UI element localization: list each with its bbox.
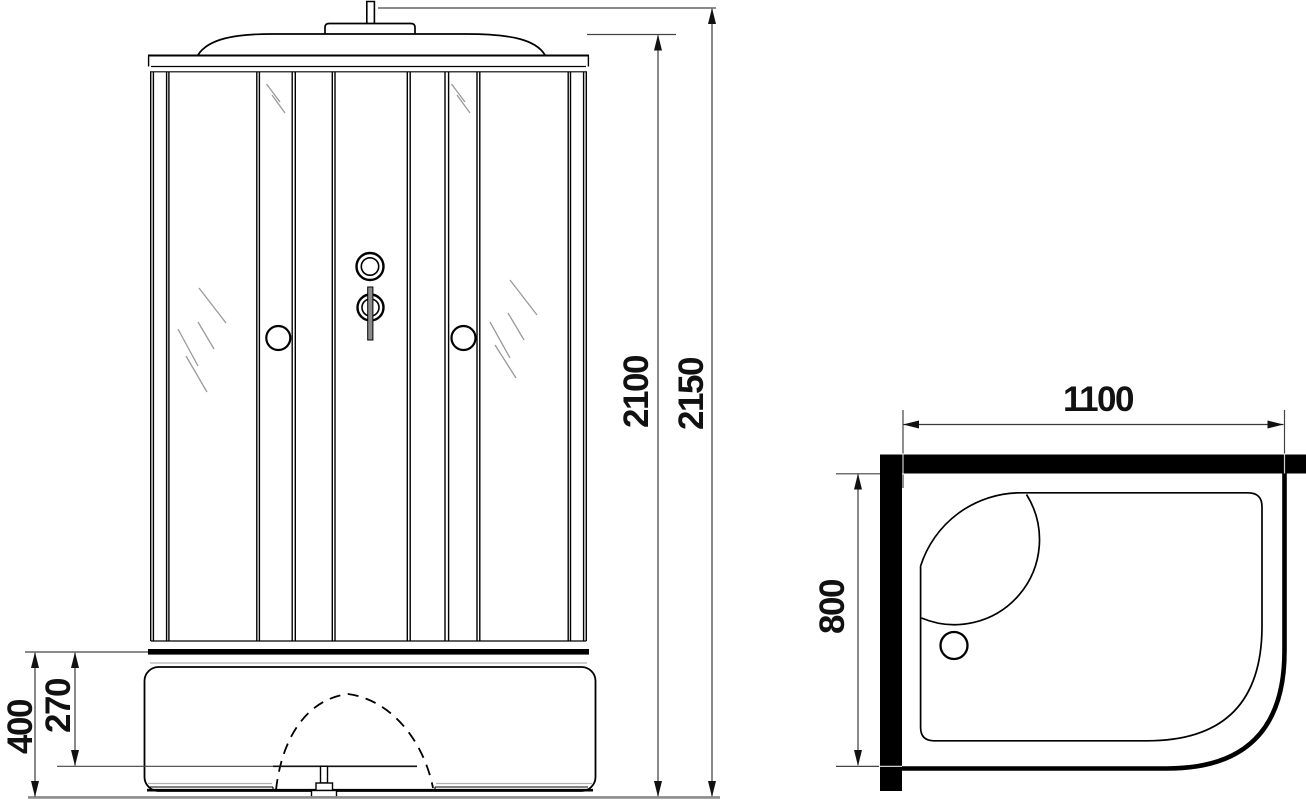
roof-pipe bbox=[367, 2, 375, 24]
plan-curved-front bbox=[898, 473, 1285, 769]
plan-seat-front-curve bbox=[922, 495, 1040, 625]
plan-tray-inner bbox=[921, 493, 1262, 741]
front-dim-arrows bbox=[31, 8, 716, 797]
dim-label-depth: 800 bbox=[815, 547, 851, 667]
tray-foot bbox=[312, 766, 337, 797]
roof-dome bbox=[198, 34, 545, 55]
front-dimensions bbox=[25, 8, 716, 797]
dim-label-tray-rim-height: 270 bbox=[41, 646, 77, 766]
roof-cap bbox=[325, 24, 415, 35]
plan-back-wall bbox=[880, 455, 1306, 474]
glass-panel-frames bbox=[151, 72, 587, 641]
dim-label-width: 1100 bbox=[1038, 382, 1158, 418]
front-view bbox=[145, 2, 596, 798]
dim-label-tray-height: 400 bbox=[3, 667, 39, 787]
left-door-knob bbox=[266, 326, 290, 350]
shower-cabin-technical-drawing: 2100 2150 400 270 1100 800 bbox=[0, 0, 1306, 800]
plan-side-wall bbox=[880, 455, 902, 792]
right-door-knob bbox=[452, 326, 476, 350]
glass-hatch-marks bbox=[178, 84, 537, 392]
access-arch-dashed bbox=[276, 694, 433, 790]
tray-soft-lines bbox=[148, 663, 592, 784]
dim-label-total-height: 2150 bbox=[674, 334, 710, 454]
top-rail bbox=[148, 56, 589, 72]
control-panel bbox=[357, 253, 384, 340]
plan-view bbox=[880, 455, 1306, 792]
plan-drain bbox=[941, 632, 968, 659]
mixer-handle bbox=[368, 287, 373, 340]
plan-seat-back-curve bbox=[921, 493, 1020, 566]
dim-label-cabin-height: 2100 bbox=[619, 332, 655, 452]
bottom-frame-band bbox=[148, 649, 589, 655]
extension-lines-1100 bbox=[903, 410, 1285, 488]
tray-outline bbox=[145, 667, 596, 791]
